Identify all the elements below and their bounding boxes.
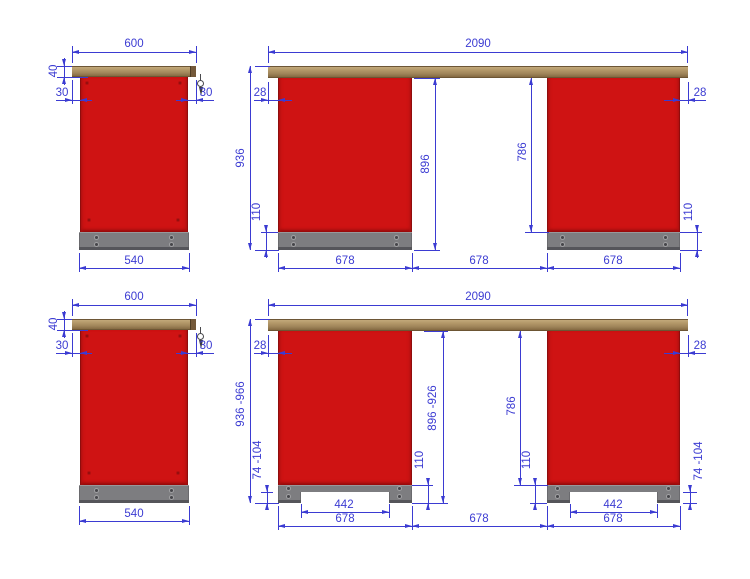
screw <box>667 487 670 490</box>
cabinet-body-left <box>278 331 412 485</box>
dim-arrow <box>533 478 537 485</box>
dim-arrow <box>265 503 269 510</box>
dim-arrow <box>533 503 537 510</box>
dim-bay-right: 678 <box>603 513 622 525</box>
screw <box>287 487 290 490</box>
screw <box>287 495 290 498</box>
dim-plinth-left: 110 <box>414 451 426 469</box>
dim-arrow <box>382 510 389 514</box>
ext-line <box>412 485 433 486</box>
screw <box>556 487 559 490</box>
dim-feet-left: 74 -104 <box>252 440 264 479</box>
ext-line <box>268 299 269 316</box>
dim-arrow <box>278 351 285 355</box>
dim-notch-right: 442 <box>603 499 622 511</box>
dim-arrow <box>265 485 269 492</box>
ext-line <box>680 506 681 530</box>
dim-notch-left: 442 <box>334 499 353 511</box>
dim-arrow <box>248 319 252 326</box>
dim-bay-left: 678 <box>335 513 354 525</box>
ext-line <box>530 485 547 486</box>
dim-arrow <box>301 510 308 514</box>
worktop <box>268 319 688 331</box>
dim-clear-height: 786 <box>506 396 518 415</box>
dim-feet-right: 74 -104 <box>693 441 705 480</box>
dim-arrow <box>673 351 680 355</box>
dim-line <box>268 305 688 306</box>
dim-arrow <box>650 510 657 514</box>
dim-arrow <box>412 524 419 528</box>
dim-arrow <box>278 524 285 528</box>
dim-arrow <box>688 485 692 492</box>
screw <box>398 487 401 490</box>
view-front-adjustable: 2090 936 -966 28 28 896 -926 786 <box>0 0 750 579</box>
dim-total-width: 2090 <box>465 291 491 303</box>
dim-total-height: 936 -966 <box>235 381 247 426</box>
dim-line <box>664 353 706 354</box>
ext-line <box>255 319 270 320</box>
dim-line <box>250 319 251 503</box>
dim-arrow <box>426 503 430 510</box>
dim-line <box>254 353 292 354</box>
dim-arrow <box>681 303 688 307</box>
dim-plinth-right: 110 <box>521 451 533 469</box>
dim-line <box>443 331 444 503</box>
dim-arrow <box>405 524 412 528</box>
dim-arrow <box>570 510 577 514</box>
cabinet-body-right <box>547 331 680 485</box>
dim-arrow <box>441 331 445 338</box>
dim-line <box>278 526 680 527</box>
dim-arrow <box>673 524 680 528</box>
dim-arrow <box>518 478 522 485</box>
screw <box>556 495 559 498</box>
dim-arrow <box>688 503 692 510</box>
dim-arrow <box>268 303 275 307</box>
dim-arrow <box>547 524 554 528</box>
ext-line <box>687 299 688 316</box>
dim-overhang-left: 28 <box>254 340 267 352</box>
screw <box>398 495 401 498</box>
plinth-strip-left <box>278 485 412 492</box>
ext-line <box>657 504 658 518</box>
dim-arrow <box>540 524 547 528</box>
dim-arrow <box>518 331 522 338</box>
dim-arrow <box>426 478 430 485</box>
dim-bay-middle: 678 <box>469 513 488 525</box>
technical-drawing-canvas: 600 40 30 30 540 <box>0 0 750 579</box>
ext-line <box>389 504 390 518</box>
dim-arrow <box>248 496 252 503</box>
dim-under-top-height: 896 -926 <box>427 385 439 430</box>
plinth-strip-right <box>547 485 680 492</box>
screw <box>667 495 670 498</box>
dim-arrow <box>441 496 445 503</box>
dim-overhang-right: 28 <box>694 340 707 352</box>
